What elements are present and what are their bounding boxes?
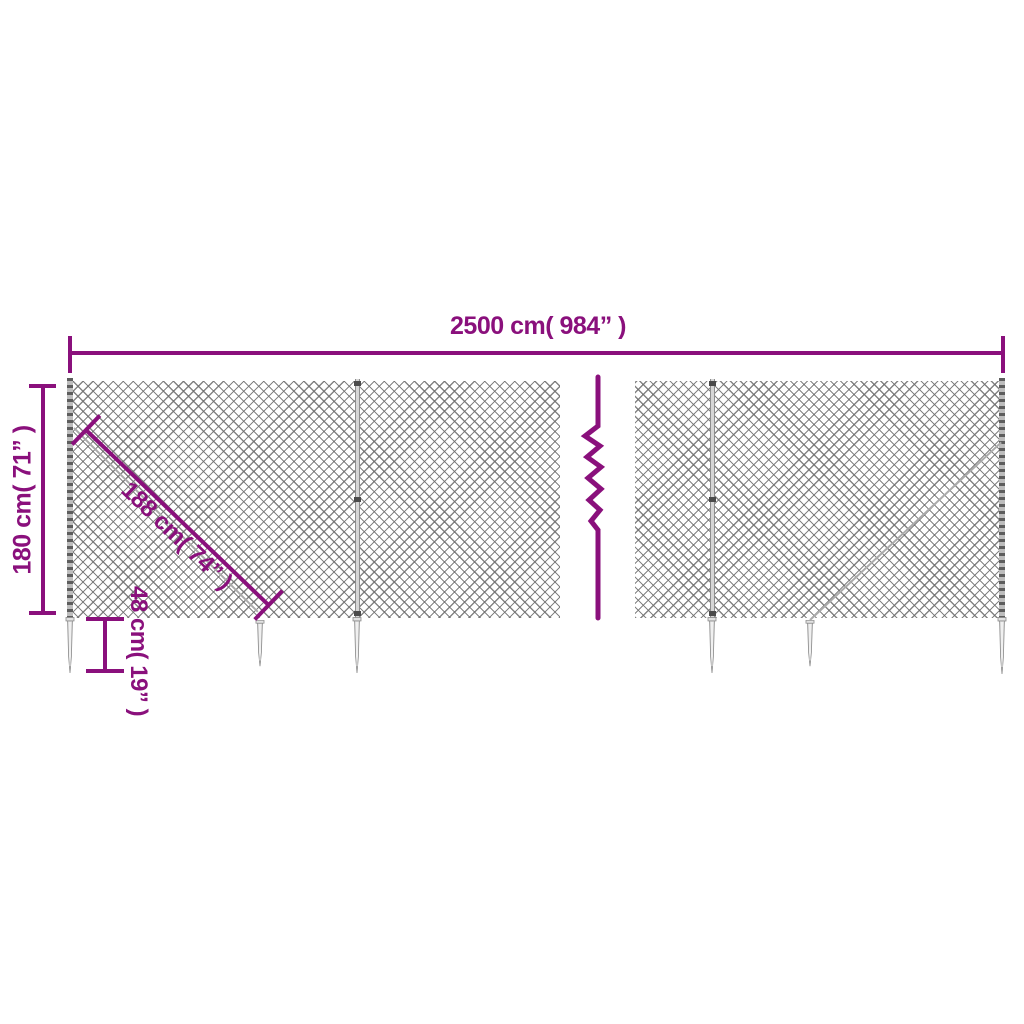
ground-spike xyxy=(350,617,364,674)
fence-post-inner xyxy=(710,379,715,620)
dimension-end-tick xyxy=(29,384,56,388)
width-dimension-line xyxy=(70,351,1003,355)
width-dimension-label: 2500 cm( 984” ) xyxy=(450,314,626,339)
fence-mesh-panel-right xyxy=(635,381,1003,618)
break-symbol xyxy=(580,374,620,622)
height-dimension-label: 180 cm( 71” ) xyxy=(11,425,36,574)
ground-spike xyxy=(253,620,267,667)
dimension-end-tick xyxy=(29,611,56,615)
post-clamp xyxy=(354,497,361,502)
fence-post-inner xyxy=(355,379,360,620)
fence-dimension-diagram: 2500 cm( 984” ) 180 cm( 71” ) 188 cm( 74… xyxy=(0,0,1024,1024)
ground-spike xyxy=(705,617,719,674)
post-clamp xyxy=(709,611,716,616)
fence-post-left-edge xyxy=(67,378,73,620)
dimension-end-tick xyxy=(86,617,124,621)
dimension-end-tick xyxy=(1001,336,1005,373)
fence-post-right-edge xyxy=(999,378,1005,620)
post-clamp xyxy=(709,381,716,386)
dimension-end-tick xyxy=(86,669,124,673)
spike-depth-dimension-line xyxy=(103,619,107,671)
height-dimension-line xyxy=(41,386,45,613)
post-clamp xyxy=(354,611,361,616)
post-clamp xyxy=(354,381,361,386)
spike-depth-dimension-label: 48 cm( 19” ) xyxy=(126,586,150,716)
ground-spike xyxy=(803,620,817,667)
ground-spike xyxy=(63,617,77,674)
post-clamp xyxy=(709,497,716,502)
dimension-end-tick xyxy=(68,336,72,373)
ground-spike xyxy=(995,617,1009,675)
